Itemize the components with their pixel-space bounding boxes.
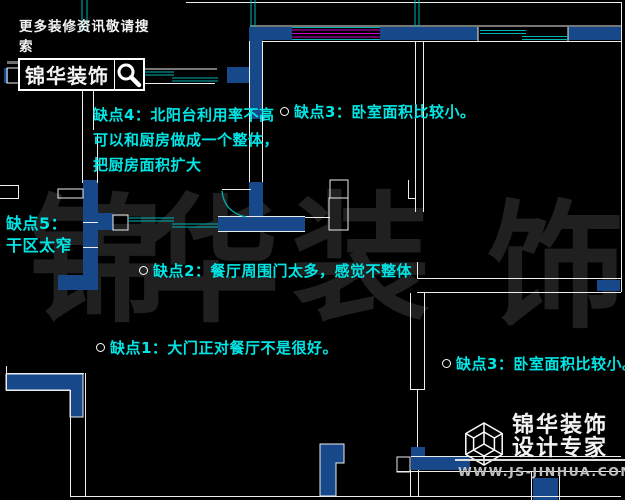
marker-circle-icon — [139, 266, 148, 275]
header-logo: 更多装修资讯敬请搜索 锦华装饰 — [7, 15, 152, 91]
footer-website: WWW.JS-JINHUA.COM — [458, 464, 625, 479]
note-defect-3-top: 缺点3：卧室面积比较小。 — [280, 101, 475, 122]
floorplan-screenshot: 锦 华 装 饰 — [0, 0, 625, 500]
footer-divider — [455, 459, 625, 461]
note-text: 缺点2：餐厅周围门太多，感觉不整体 — [153, 262, 412, 280]
footer-logo: 锦华装饰 设计专家 WWW.JS-JINHUA.COM — [458, 414, 625, 500]
brand-name: 锦华装饰 — [20, 60, 114, 89]
note-defect-4: 缺点4：北阳台利用率不高 可以和厨房做成一个整体， 把厨房面积扩大 — [93, 103, 279, 178]
note-defect-2: 缺点2：餐厅周围门太多，感觉不整体 — [139, 260, 412, 281]
note-text: 缺点3：卧室面积比较小。 — [456, 355, 625, 373]
marker-circle-icon — [442, 359, 451, 368]
note-line: 把厨房面积扩大 — [93, 153, 279, 178]
note-line: 缺点4：北阳台利用率不高 — [93, 103, 279, 128]
note-text: 缺点1：大门正对餐厅不是很好。 — [110, 339, 338, 357]
note-line: 可以和厨房做成一个整体， — [93, 128, 279, 153]
header-tagline: 更多装修资讯敬请搜索 — [19, 15, 152, 55]
marker-circle-icon — [96, 343, 105, 352]
note-line: 缺点5： — [6, 213, 72, 235]
marker-circle-icon — [280, 107, 289, 116]
search-box-logo: 锦华装饰 — [18, 58, 145, 91]
magnifier-icon — [115, 62, 143, 88]
note-defect-5: 缺点5： 干区太窄 — [6, 213, 72, 257]
note-defect-1: 缺点1：大门正对餐厅不是很好。 — [96, 337, 338, 358]
note-defect-3-bottom: 缺点3：卧室面积比较小。 — [442, 353, 625, 374]
footer-slogan: 设计专家 — [512, 437, 625, 460]
footer-brand-name: 锦华装饰 — [512, 414, 625, 437]
note-text: 缺点3：卧室面积比较小。 — [294, 103, 475, 121]
note-line: 干区太窄 — [6, 235, 72, 257]
